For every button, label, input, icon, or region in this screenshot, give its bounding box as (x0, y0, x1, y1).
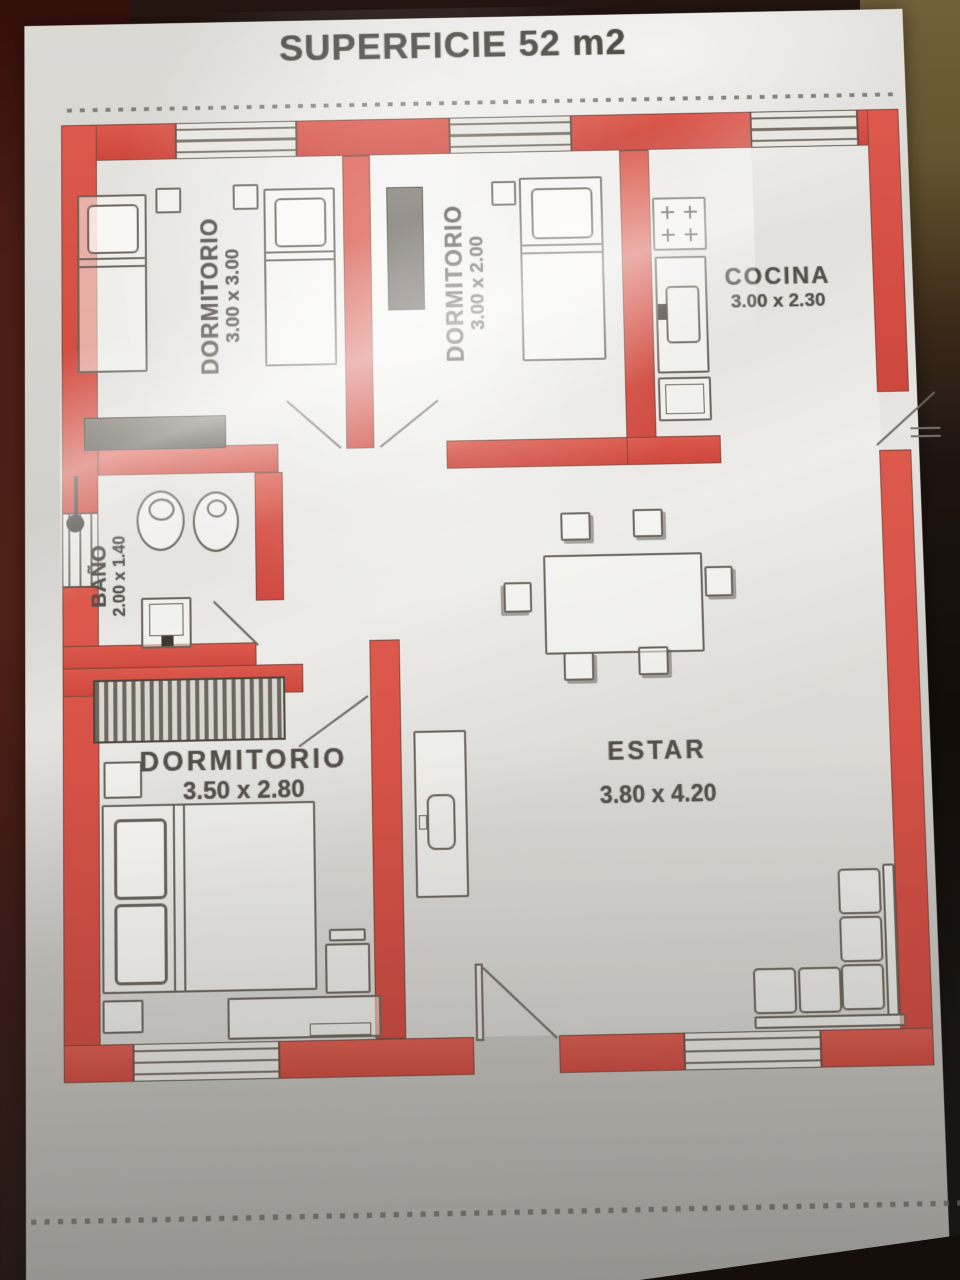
window-icon (684, 1030, 822, 1071)
dining-table-icon (543, 552, 705, 655)
wall-segment (64, 1044, 134, 1083)
wardrobe-icon (386, 187, 425, 311)
wardrobe-icon (93, 676, 286, 743)
room-name: COCINA (678, 261, 878, 292)
double-bed-icon (102, 801, 318, 994)
door-leaf-icon (475, 963, 485, 1041)
wall-segment (296, 118, 450, 157)
wall-segment (255, 472, 285, 601)
desk-icon (227, 995, 381, 1040)
wall-segment (820, 1028, 934, 1068)
nightstand-icon (102, 1000, 143, 1034)
chair-icon (563, 652, 594, 681)
chair-icon (632, 509, 663, 538)
stove-icon (652, 197, 707, 251)
counter-icon (658, 376, 712, 421)
room-name: DORMITORIO (439, 185, 469, 383)
window-icon (176, 121, 297, 159)
window-icon (750, 110, 858, 148)
wall-segment (571, 112, 752, 152)
nightstand-icon (155, 188, 181, 214)
room-name: BAÑO (87, 501, 112, 653)
chair-icon (638, 646, 669, 675)
single-bed-icon (263, 187, 337, 366)
room-name: ESTAR (530, 734, 784, 769)
floorplan-photo: SUPERFICIE 52 m2 (0, 0, 960, 1280)
dresser-icon (84, 415, 226, 451)
nightstand-icon (491, 181, 516, 206)
paper-sheet: SUPERFICIE 52 m2 (0, 0, 960, 1280)
wall-segment (559, 1033, 685, 1073)
tv-unit-icon (413, 730, 469, 898)
washbasin-icon (141, 597, 192, 649)
room-dimensions: 3.00 x 2.00 (466, 184, 492, 382)
chair-icon (560, 512, 591, 541)
chair-icon (704, 566, 733, 597)
cabinet-icon (329, 928, 366, 941)
wall-segment (446, 437, 635, 469)
chair-icon (503, 582, 532, 613)
window-icon (449, 115, 571, 153)
room-label-bano: BAÑO 2.00 x 1.40 (83, 500, 134, 653)
single-bed-icon (519, 176, 607, 361)
room-dimensions: 2.00 x 1.40 (111, 500, 130, 652)
door-threshold-icon (910, 427, 940, 438)
room-dimensions: 3.00 x 2.30 (678, 288, 878, 314)
room-label-cocina: COCINA 3.00 x 2.30 (678, 261, 878, 314)
room-dimensions: 3.80 x 4.20 (531, 778, 786, 810)
wall-segment (279, 1037, 475, 1079)
cabinet-icon (325, 943, 371, 994)
room-dimensions: 3.00 x 3.00 (222, 197, 246, 395)
window-icon (133, 1041, 279, 1082)
room-label-estar: ESTAR 3.80 x 4.20 (530, 734, 785, 810)
wall-segment (342, 155, 374, 448)
room-name: DORMITORIO (196, 197, 224, 395)
room-label-dormitorio-2: DORMITORIO 3.00 x 2.00 (434, 184, 498, 383)
single-bed-icon (77, 194, 147, 373)
room-label-dormitorio-3: DORMITORIO 3.50 x 2.80 (91, 742, 396, 808)
wall-segment (626, 435, 721, 465)
room-label-dormitorio-1: DORMITORIO 3.00 x 3.00 (188, 197, 254, 396)
